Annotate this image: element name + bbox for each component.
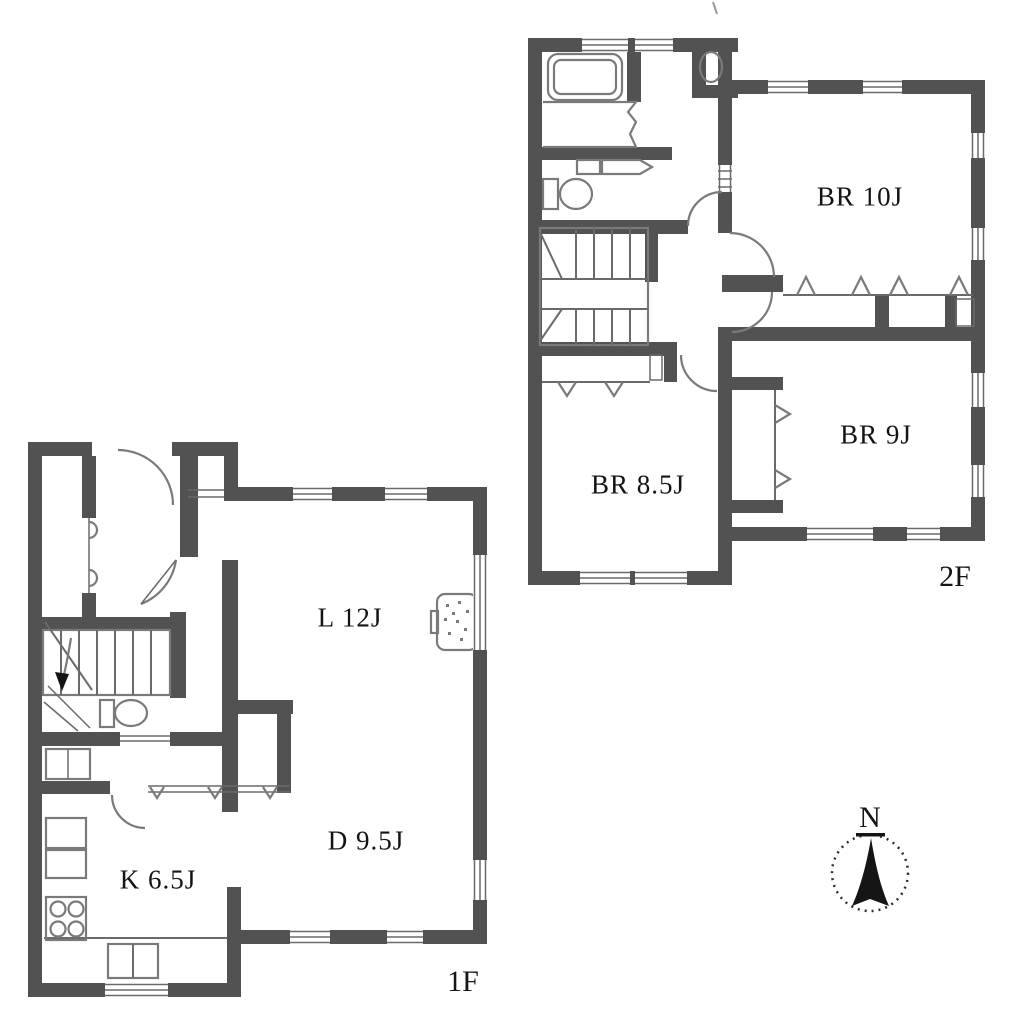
door-arc-washroom [688, 192, 722, 226]
north-arrow [852, 838, 889, 906]
stairs-2f [540, 228, 648, 345]
closet-br85j [542, 355, 662, 396]
laundry-counter [602, 160, 652, 174]
room-label-br9j: BR 9J [840, 420, 912, 451]
floor-label-1f: 1F [447, 965, 479, 999]
room-label-living: L 12J [318, 603, 383, 634]
window [807, 527, 873, 541]
room-label-br10j: BR 10J [817, 182, 903, 213]
floor-label-2f: 2F [939, 560, 971, 594]
door-arc-br10j [730, 233, 774, 277]
wall-opening-ticks [718, 165, 732, 192]
window [290, 930, 330, 944]
bathtub-icon [548, 54, 622, 100]
toilet-sliding-door [120, 736, 170, 741]
window [387, 930, 423, 944]
closet-br9j [775, 390, 790, 500]
hearth-icon [431, 594, 477, 650]
room-label-br85j: BR 8.5J [591, 470, 685, 501]
kitchen-sink-icon [108, 944, 158, 978]
window [768, 80, 808, 94]
window [971, 133, 985, 158]
stove-icon [46, 897, 86, 940]
walls-2f [528, 38, 985, 585]
toilet-2f-icon [543, 179, 592, 209]
floorplan-canvas: BR 10J BR 9J BR 8.5J 2F L 12J D 9.5J K 6… [0, 0, 1024, 1024]
vanity-counter [543, 102, 636, 147]
floor-1f-plan [28, 442, 487, 997]
room-label-kitchen: K 6.5J [120, 865, 197, 896]
cabinet [577, 160, 600, 174]
sliding-doors-dining [148, 786, 290, 798]
window [863, 80, 902, 94]
door-arc-br85j [681, 355, 717, 391]
window [971, 465, 985, 497]
window [473, 555, 487, 650]
door-arc-hall-living [141, 560, 176, 604]
window [105, 983, 168, 997]
window [385, 487, 427, 501]
room-label-dining: D 9.5J [328, 826, 405, 857]
window [907, 527, 940, 541]
door-arc-entrance [118, 450, 173, 505]
stairs-1f [43, 622, 170, 695]
window [580, 571, 630, 585]
understair-hatch [44, 686, 90, 731]
compass [832, 833, 908, 911]
window [293, 487, 332, 501]
hall-closet-doors [89, 518, 97, 593]
scan-artifact [713, 2, 717, 14]
window [473, 860, 487, 900]
window [582, 38, 628, 52]
compass-north-label: N [859, 801, 881, 835]
walls-1f [28, 442, 487, 997]
door-arc-br9j [732, 292, 772, 332]
window [635, 571, 687, 585]
window [971, 228, 985, 260]
door-arc-kitchen [112, 795, 145, 828]
window [971, 373, 985, 407]
floor-2f-plan [528, 38, 985, 585]
toilet-1f-icon [100, 700, 147, 727]
window [635, 38, 673, 52]
